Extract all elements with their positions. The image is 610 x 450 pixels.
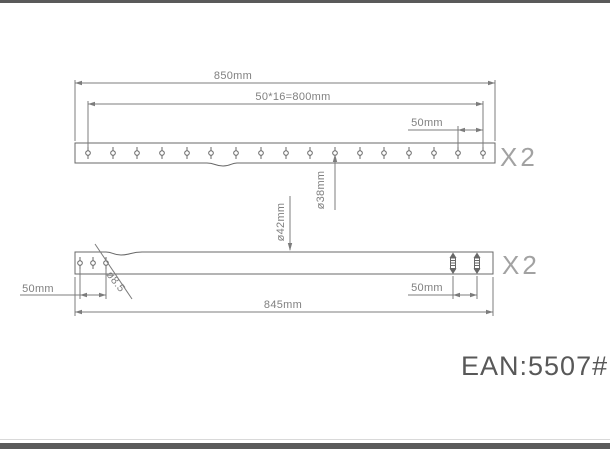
stud-right	[474, 253, 481, 275]
dim-850-line	[75, 80, 495, 141]
dim-850-label: 850mm	[203, 70, 263, 82]
dim-845-label: 845mm	[253, 299, 313, 311]
bottom-rail-holes	[78, 257, 109, 269]
dim-800-label: 50*16=800mm	[243, 91, 343, 103]
bottom-border-highlight	[0, 439, 610, 440]
stud-left	[450, 253, 457, 275]
dia-42-label: ø42mm	[275, 200, 287, 244]
bottom-part-quantity: X2	[502, 251, 540, 279]
dim-50-top-line	[408, 126, 483, 147]
bottom-rail-outline	[75, 252, 493, 274]
dia-38-leader	[333, 154, 337, 210]
dim-50-top-label: 50mm	[408, 117, 446, 129]
dim-50-bottom-right-label: 50mm	[408, 282, 446, 294]
top-rail-holes	[86, 147, 486, 159]
dia-38-label: ø38mm	[315, 168, 327, 212]
dim-50-bottom-left-label: 50mm	[18, 283, 58, 295]
technical-drawing: 850mm 50*16=800mm 50mm ø38mm ø42mm X2 ø8…	[0, 0, 610, 450]
dia-42-leader	[288, 196, 292, 251]
bottom-border	[0, 443, 610, 449]
ean-label: EAN:5507#	[461, 351, 608, 382]
drawing-canvas	[0, 0, 610, 450]
top-part-quantity: X2	[500, 143, 538, 171]
